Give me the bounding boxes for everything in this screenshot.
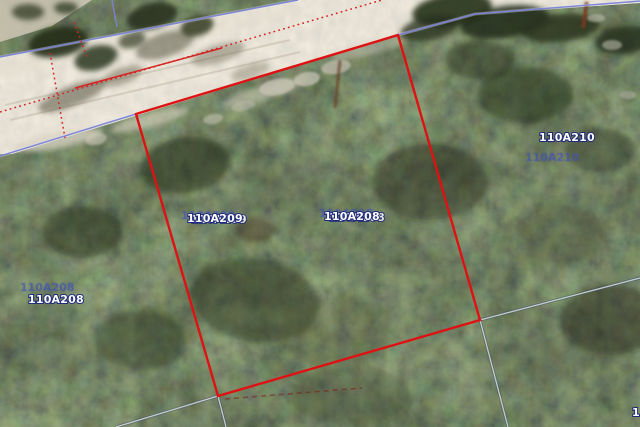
parcel-label-text: 110A208 (324, 210, 380, 223)
parcel-label-text: 1 (632, 406, 640, 419)
parcel-label-text: 110A209 (187, 212, 243, 225)
parcel-label-text: 110A210 (539, 131, 595, 144)
aerial-map[interactable]: 110A209 110A209 110A209 110A208 110A208 … (0, 0, 640, 427)
parcel-label-ghost: 110A210 (525, 151, 580, 164)
parcel-label-partial-bottom-right: 1 (632, 406, 640, 419)
map-viewport[interactable]: 110A209 110A209 110A209 110A208 110A208 … (0, 0, 640, 427)
parcel-label-center-right: 110A208 110A208 110A208 (319, 207, 385, 224)
parcel-label-center-left: 110A209 110A209 110A209 (181, 209, 247, 226)
parcel-label-left: 110A208 110A208 (20, 281, 84, 306)
parcel-label-text: 110A208 (28, 293, 84, 306)
